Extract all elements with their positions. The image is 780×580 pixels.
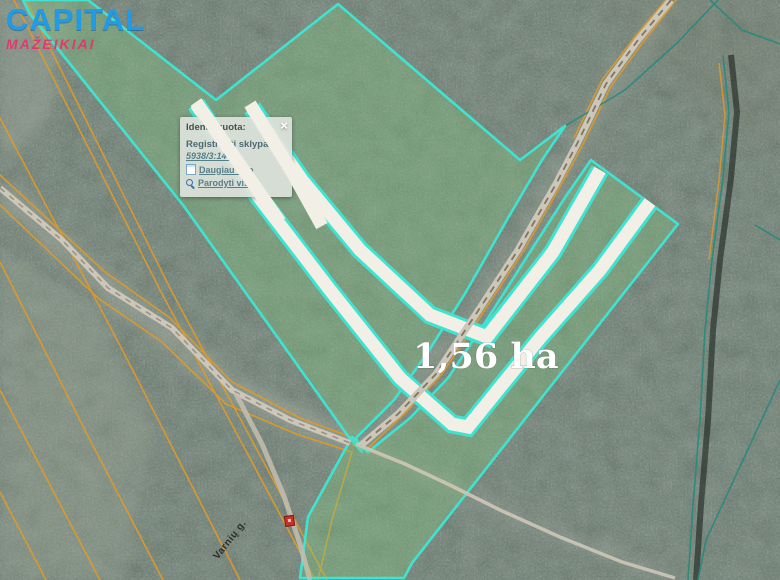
red-building-marker[interactable] bbox=[284, 515, 294, 526]
map-canvas[interactable]: 1,56 ha Varnių g. × Identifikuota: Regis… bbox=[0, 0, 780, 580]
more-info-link[interactable]: Daugiau info bbox=[199, 165, 254, 175]
info-page-icon bbox=[186, 164, 196, 175]
logo-title: CAPITAL bbox=[6, 4, 145, 35]
show-all-link[interactable]: Parodyti visą bbox=[198, 178, 254, 188]
identify-popup: × Identifikuota: Registruoti sklypai: 59… bbox=[180, 117, 292, 197]
popup-section-label: Registruoti sklypai: bbox=[186, 139, 286, 150]
logo-subtitle: MAŽEIKIAI bbox=[6, 37, 145, 51]
popup-title: Identifikuota: bbox=[186, 122, 286, 133]
satellite-map[interactable]: 1,56 ha Varnių g. bbox=[0, 0, 780, 580]
cadastral-number-link[interactable]: 5938/3:144 bbox=[186, 151, 286, 161]
site-logo: CAPITAL MAŽEIKIAI bbox=[6, 4, 145, 51]
close-icon[interactable]: × bbox=[280, 119, 288, 132]
magnifier-icon bbox=[186, 179, 195, 188]
area-label: 1,56 ha bbox=[413, 336, 559, 377]
